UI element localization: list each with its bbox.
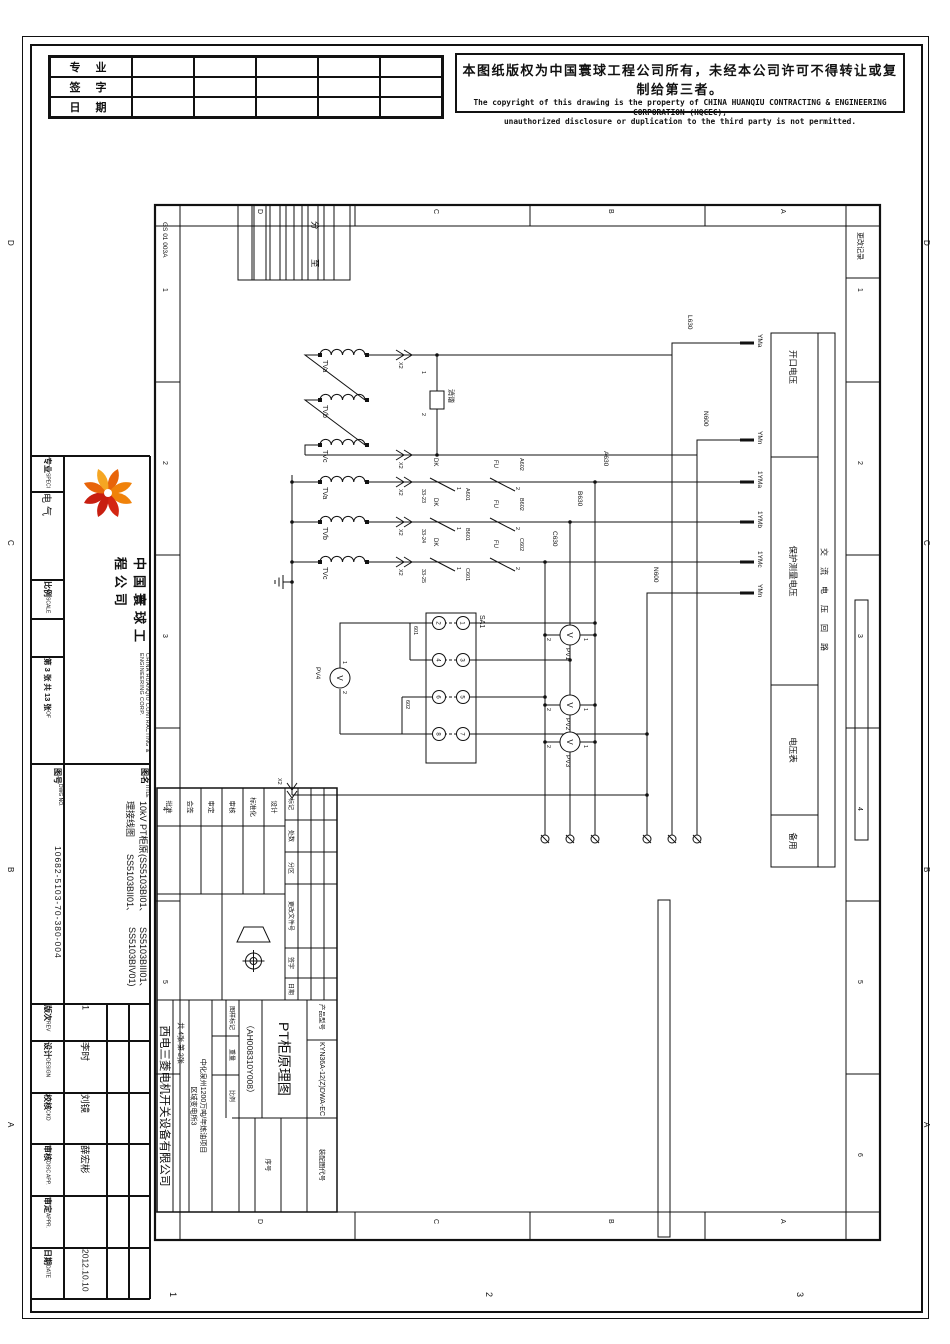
x2-label: X2 — [397, 489, 403, 496]
outer-zone-letter: A — [922, 1122, 931, 1128]
pv-label: PV3 — [564, 755, 571, 768]
tb-label: 比例 — [228, 1090, 236, 1102]
damper-box — [430, 391, 444, 409]
wire-label: L630 — [686, 315, 693, 330]
serial-label: 序号 — [264, 1159, 273, 1173]
damper-label: 消谐 — [447, 389, 456, 403]
mini-strip-char: 至 — [310, 259, 320, 268]
outer-zone-letter: C — [6, 540, 15, 546]
zone-num: 1 — [161, 288, 168, 292]
product-value: KYN36A-12(Z)DWA-EC — [318, 1042, 325, 1116]
mini-strip-char: 分 — [310, 221, 320, 230]
wire-label: A602 — [518, 458, 524, 471]
outer-zone-letter: C — [922, 540, 931, 546]
wire — [292, 482, 320, 562]
project-line2: 区域变电所3 — [190, 1087, 199, 1126]
tb-label: 图样标记 — [228, 1006, 236, 1030]
ground-symbol — [275, 575, 292, 589]
wire-label: B630 — [576, 491, 583, 507]
spare-ends — [541, 835, 701, 843]
wire — [470, 623, 647, 734]
zone-letter: B — [607, 1219, 614, 1224]
voltmeters — [330, 617, 580, 753]
v-glyph: V — [565, 702, 574, 708]
wire-label: A630 — [602, 451, 609, 467]
zone-num: 3 — [161, 634, 168, 638]
tb-label: 处数 — [287, 830, 295, 842]
aux-label: 33-25 — [420, 569, 426, 583]
func-row: 电压表 — [788, 737, 798, 763]
zone-num: 1 — [856, 288, 863, 292]
zone-letter: D — [256, 1219, 263, 1224]
circuit-label: 交流电压回路 — [820, 548, 830, 662]
wire-label: N600 — [702, 411, 709, 427]
term-label: 1YMa — [756, 471, 763, 488]
zone-letter: D — [256, 209, 263, 214]
zone-letter: A — [779, 209, 786, 214]
tb-label: 会签 — [186, 801, 195, 815]
pv-label: PV2 — [564, 718, 571, 731]
wire-label: C630 — [551, 531, 558, 547]
outer-zone-num: 2 — [484, 1292, 494, 1297]
wire — [340, 623, 432, 734]
pin: 2 — [545, 708, 551, 711]
dk-label: DK — [432, 458, 438, 466]
pin: 1 — [455, 527, 461, 530]
pin: 1 — [582, 638, 588, 641]
pin: 1 — [455, 487, 461, 490]
pin: 2 — [545, 638, 551, 641]
pin: 2 — [514, 527, 520, 530]
pin: 2 — [545, 745, 551, 748]
tb-label: 设计 — [270, 801, 279, 815]
wire-label: C601 — [464, 568, 470, 581]
outer-zone-num: 3 — [795, 1292, 805, 1297]
drawing-title: PT柜原理图 — [276, 1022, 292, 1096]
pt-label: TVb — [321, 405, 328, 418]
mini-strip-table — [238, 205, 350, 280]
v-glyph: V — [565, 632, 574, 638]
wire-label: B601 — [464, 528, 470, 541]
outer-zone-letter: B — [6, 867, 15, 872]
func-row: 开口电压 — [788, 350, 798, 385]
zone-letter: B — [607, 209, 614, 214]
pt-label: TVc — [321, 450, 328, 463]
outer-zone-letter: D — [6, 240, 15, 246]
aux-label: 33-24 — [420, 529, 426, 543]
wire — [697, 440, 742, 837]
zone-letter: A — [779, 1219, 786, 1224]
terminal-bars — [740, 343, 754, 593]
pin: 2 — [514, 487, 520, 490]
wire-label: A601 — [464, 488, 470, 501]
zone-num: 6 — [856, 1153, 863, 1157]
term-label: YMn — [756, 584, 763, 598]
zone-num: 2 — [161, 461, 168, 465]
tb-label: 标准化 — [249, 797, 258, 817]
zone-num: 5 — [161, 980, 168, 984]
x2-label: X2 — [276, 778, 282, 785]
pin: 2 — [341, 691, 347, 694]
fu-label: FU — [492, 460, 498, 468]
wire-label: B602 — [518, 498, 524, 511]
wire-label: N600 — [652, 567, 659, 583]
pv-label: PV4 — [314, 667, 321, 680]
pin: 2 — [514, 567, 520, 570]
sa1-label: SA1 — [478, 615, 485, 628]
outer-zone-letter: B — [922, 867, 931, 872]
pin: 1 — [582, 745, 588, 748]
product-label: 产品型号 — [318, 1004, 327, 1031]
aux-label: 33-23 — [420, 489, 426, 503]
tb-label: 分区 — [287, 862, 295, 874]
schematic-labels: 开口电压 保护测量电压 电压表 备用 交流电压回路 YMa YMn 1YMa 1… — [276, 221, 830, 850]
rev-strip-label: 更改记录 — [856, 232, 865, 260]
manufacturer: 西电三菱电机开关设备有限公司 — [158, 1026, 172, 1187]
func-row: 备用 — [788, 832, 798, 849]
dk-label: DK — [432, 498, 438, 506]
v-glyph: V — [565, 739, 574, 745]
drawing-sheet: 专 业 签 字 日 期 本图纸版权为中国寰球工程公司所有，未经本公司许可不得转让… — [0, 0, 950, 1344]
pin: 2 — [420, 413, 426, 416]
term-label: YMa — [756, 334, 763, 348]
schematic-canvas: GS 01 003A 更改记录 1 2 3 4 5 6 1 2 3 4 5 6 … — [0, 0, 950, 1344]
inner-title-block: 标记 处数 分区 更改文件号 签字 日期 设计 标准化 审核 审定 会签 批准 … — [157, 788, 337, 1212]
pv-label: PV1 — [564, 648, 571, 661]
doc-code: GS 01 003A — [161, 222, 168, 258]
rotated-drawing: 开口电压 保护测量电压 电压表 备用 交流电压回路 YMa YMn 1YMa 1… — [157, 205, 868, 1212]
tb-label: 审核 — [228, 801, 237, 815]
zone-num: 4 — [856, 807, 863, 811]
sheet-count: 共 4张 第 2张 — [177, 1022, 186, 1064]
outer-zone-letter: D — [922, 240, 931, 246]
tb-label: 批准 — [165, 801, 174, 815]
zone-letter: C — [432, 1219, 439, 1224]
pt-label: TVa — [321, 487, 328, 499]
outer-zone-letter: A — [6, 1122, 15, 1128]
x2-label: X2 — [397, 462, 403, 469]
tb-label: 审定 — [207, 801, 216, 815]
tb-label: 标记 — [287, 798, 295, 810]
x2-terminals — [287, 350, 412, 798]
sa1-box — [426, 613, 476, 763]
pt-label: TVb — [321, 527, 328, 540]
zone-num: 5 — [856, 980, 863, 984]
sa1-dashed — [420, 623, 482, 734]
fu-label: FU — [492, 500, 498, 508]
tb-label: 更改文件号 — [287, 901, 295, 931]
wire-label: C602 — [518, 538, 524, 551]
tb-label: 日期 — [287, 983, 295, 995]
project-line1: 中化泉州1200万吨/年炼油项目 — [199, 1059, 208, 1154]
tb-label: 重量 — [228, 1049, 236, 1061]
term-label: YMn — [756, 431, 763, 445]
x2-label: X2 — [397, 362, 403, 369]
term-label: 1YMb — [756, 511, 763, 528]
v-glyph: V — [335, 675, 344, 681]
zone-letter: C — [432, 209, 439, 214]
wire — [365, 562, 742, 837]
term-label: 1YMc — [756, 551, 763, 568]
pin: 1 — [420, 371, 426, 374]
pin: 1 — [582, 708, 588, 711]
drawing-code: （AH008310Y008） — [245, 1020, 255, 1097]
pin: 1 — [455, 567, 461, 570]
x2-label: X2 — [397, 569, 403, 576]
wire-label: 601 — [412, 626, 418, 635]
assembly-label: 装配图代号 — [318, 1149, 327, 1182]
contacts — [430, 478, 515, 571]
dk-label: DK — [432, 538, 438, 546]
wire-label: 602 — [404, 700, 410, 709]
x2-label: X2 — [397, 529, 403, 536]
pin: 1 — [341, 661, 347, 664]
outer-zone-num: 1 — [168, 1292, 178, 1297]
zone-num: 3 — [856, 634, 863, 638]
tb-label: 签字 — [287, 957, 295, 969]
pt-label: TVc — [321, 567, 328, 580]
func-row: 保护测量电压 — [788, 545, 798, 597]
fold-box — [658, 900, 670, 1237]
zone-num: 2 — [856, 461, 863, 465]
pt-label: TVa — [321, 360, 328, 372]
projection-symbol — [237, 927, 270, 972]
fu-label: FU — [492, 540, 498, 548]
